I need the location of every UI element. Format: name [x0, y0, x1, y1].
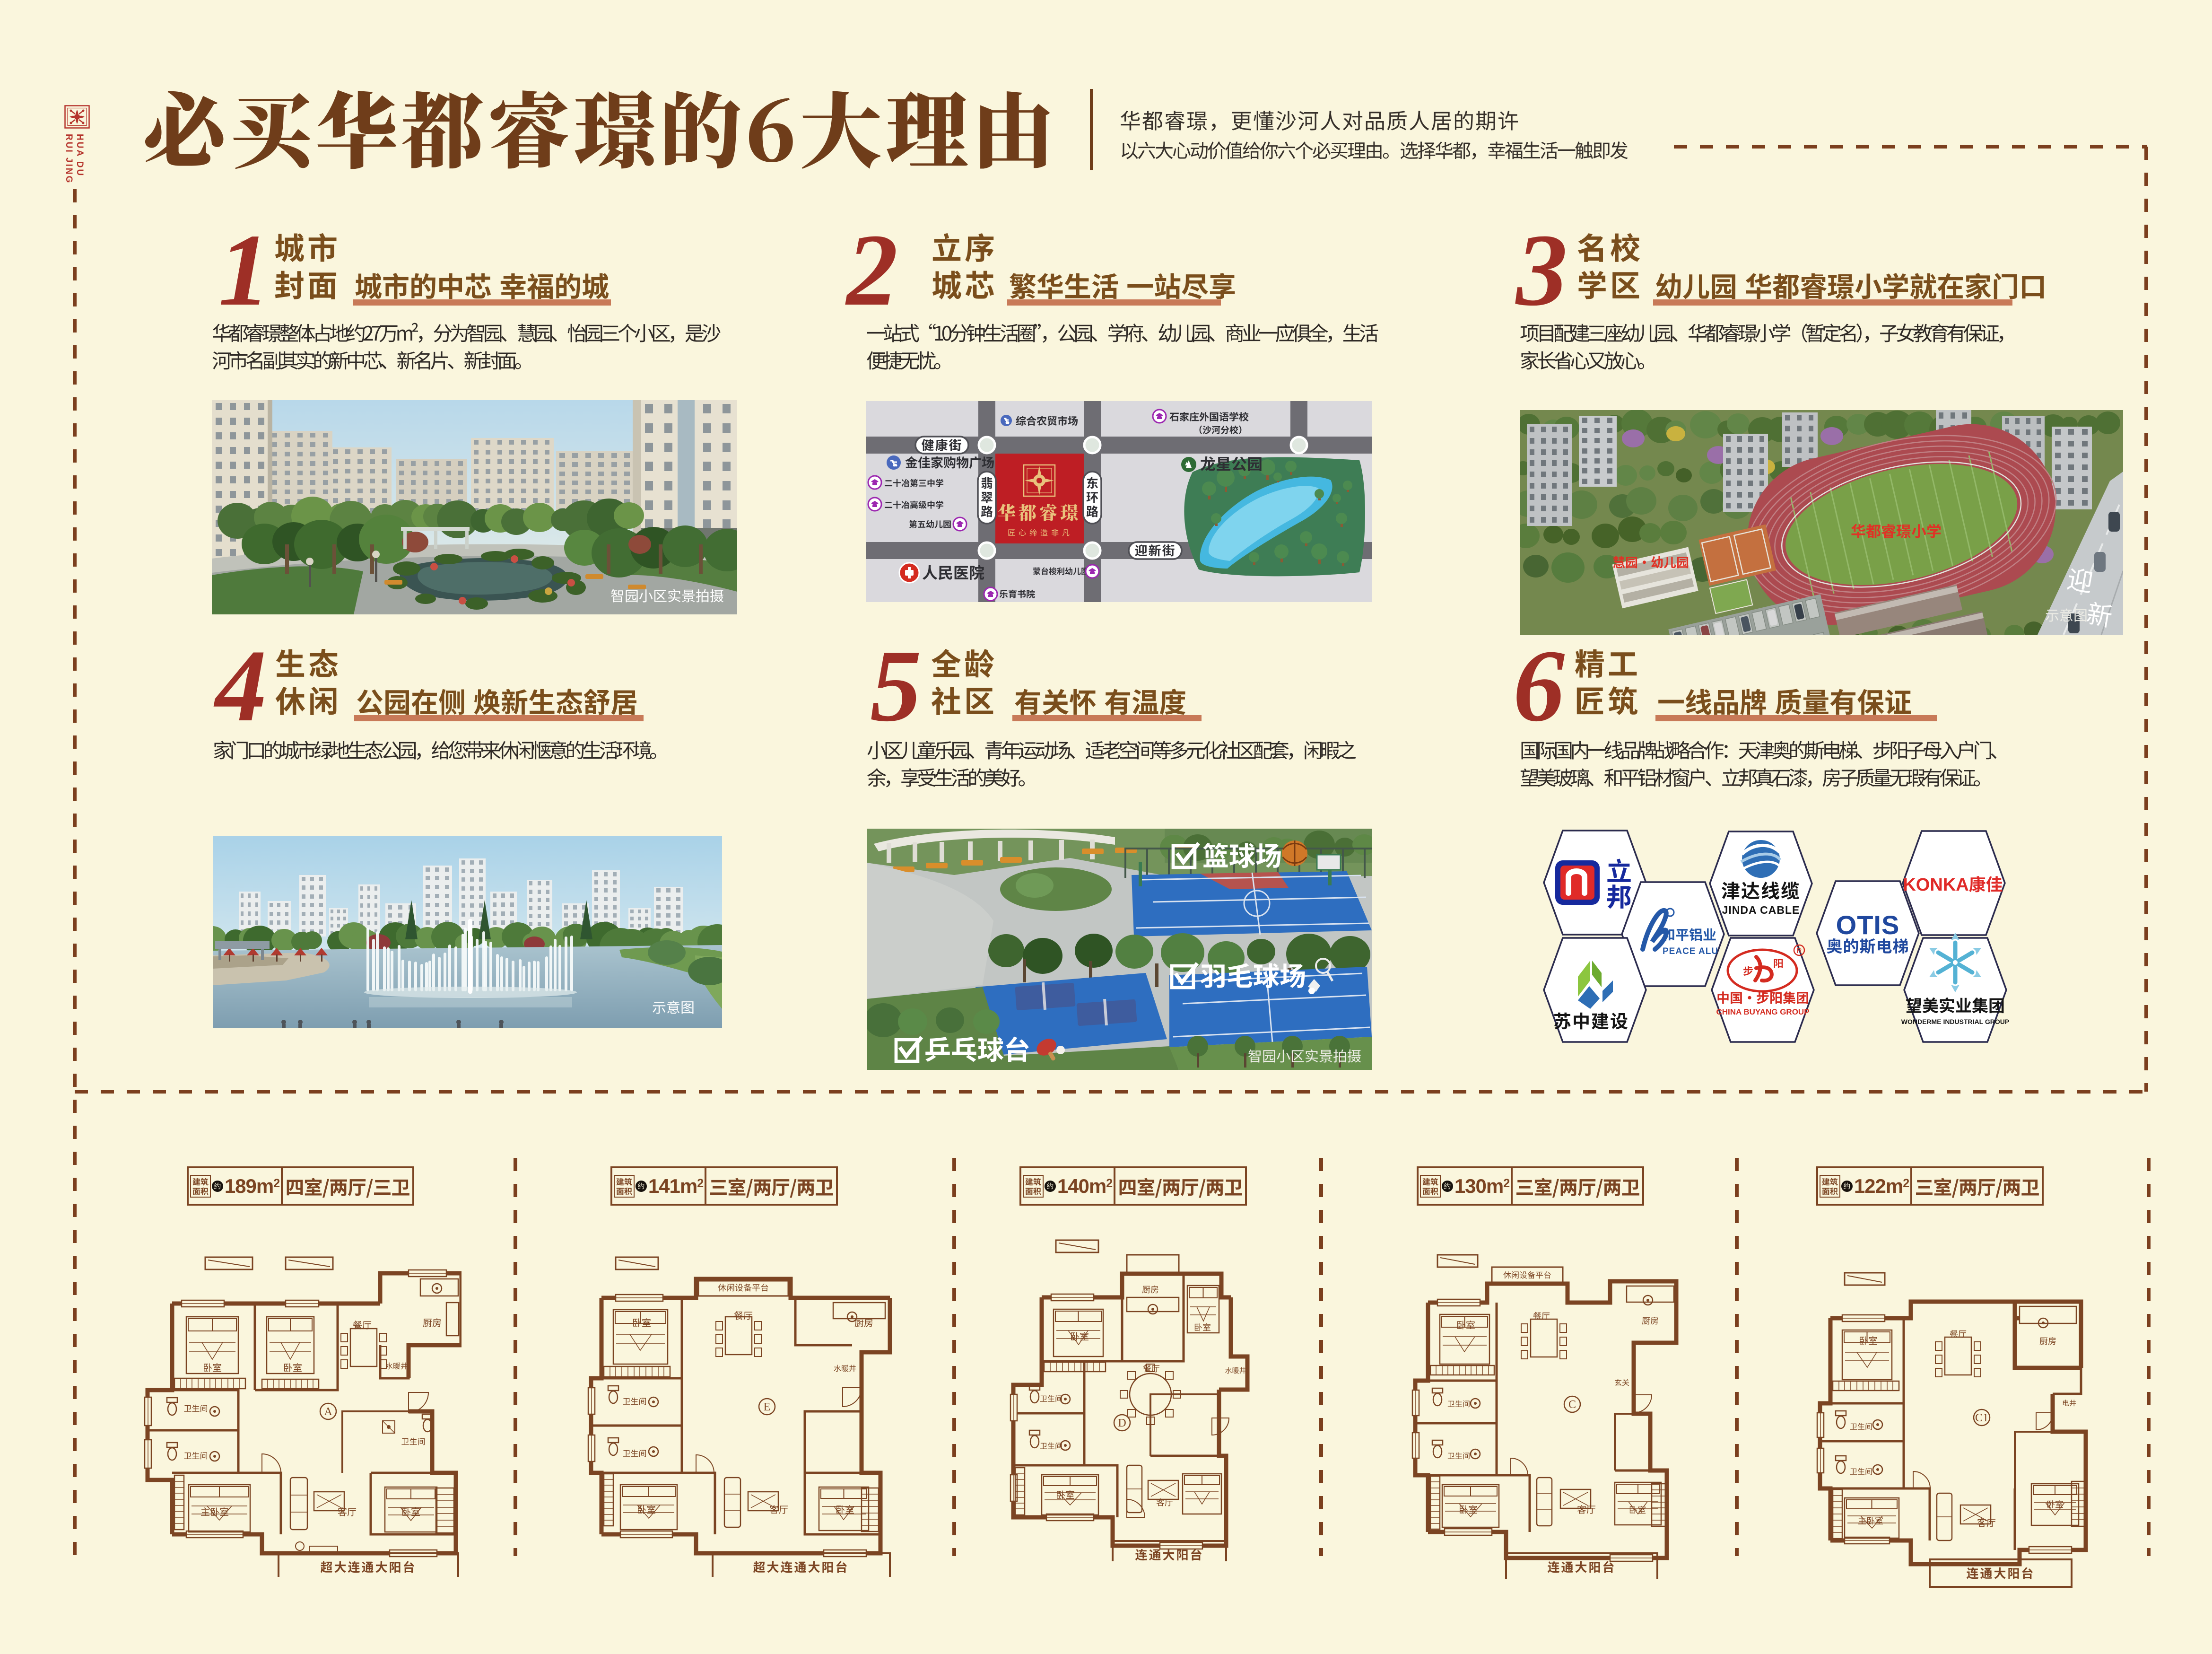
svg-text:连通大阳台: 连通大阳台 [1547, 1558, 1616, 1575]
svg-text:奥的斯电梯: 奥的斯电梯 [1827, 934, 1909, 957]
svg-text:客厅: 客厅 [338, 1505, 357, 1518]
svg-text:智园小区实景拍摄: 智园小区实景拍摄 [610, 585, 724, 605]
svg-text:电井: 电井 [2062, 1398, 2076, 1408]
svg-text:卧室: 卧室 [1070, 1329, 1089, 1343]
svg-text:连通大阳台: 连通大阳台 [1966, 1564, 2035, 1582]
svg-text:健康街: 健康街 [922, 435, 963, 454]
svg-text:餐厅: 餐厅 [1950, 1328, 1967, 1340]
svg-text:卧室: 卧室 [401, 1505, 420, 1518]
svg-text:餐厅: 餐厅 [1533, 1310, 1550, 1322]
svg-text:卫生间: 卫生间 [1447, 1398, 1470, 1409]
svg-text:D: D [1118, 1417, 1126, 1429]
svg-text:WONDERME INDUSTRIAL GROUP: WONDERME INDUSTRIAL GROUP [1901, 1018, 2009, 1025]
svg-text:华都睿璟: 华都睿璟 [998, 499, 1081, 525]
svg-text:厨房: 厨房 [2039, 1335, 2056, 1347]
svg-text:龙星公园: 龙星公园 [1200, 452, 1263, 474]
svg-text:第五幼儿园: 第五幼儿园 [909, 518, 951, 530]
svg-text:迎新街: 迎新街 [1135, 541, 1176, 559]
svg-text:金佳家购物广场: 金佳家购物广场 [905, 453, 994, 471]
svg-text:客厅: 客厅 [1156, 1496, 1173, 1508]
svg-text:卧室: 卧室 [632, 1315, 651, 1329]
svg-text:超大连通大阳台: 超大连通大阳台 [753, 1558, 849, 1575]
svg-text:华都睿璟小学: 华都睿璟小学 [1851, 520, 1942, 542]
svg-text:乒乓球台: 乒乓球台 [924, 1029, 1030, 1068]
svg-text:（沙河分校）: （沙河分校） [1193, 423, 1247, 436]
svg-text:厨房: 厨房 [423, 1315, 442, 1329]
svg-text:厨房: 厨房 [1142, 1283, 1159, 1295]
svg-text:望美实业集团: 望美实业集团 [1906, 993, 2005, 1017]
svg-text:乐育书院: 乐育书院 [999, 587, 1035, 600]
svg-text:中国·步阳集团: 中国·步阳集团 [1716, 988, 1809, 1007]
svg-text:卧室: 卧室 [836, 1502, 854, 1516]
svg-text:餐厅: 餐厅 [734, 1308, 753, 1322]
svg-text:卫生间: 卫生间 [1850, 1465, 1872, 1477]
svg-text:水暖井: 水暖井 [1225, 1365, 1246, 1375]
svg-text:卧室: 卧室 [1459, 1502, 1478, 1516]
svg-text:示意图: 示意图 [652, 996, 695, 1017]
svg-text:苏中建设: 苏中建设 [1553, 1007, 1629, 1033]
svg-text:羽毛球场: 羽毛球场 [1200, 955, 1306, 994]
svg-text:卧室: 卧室 [1056, 1488, 1075, 1501]
svg-text:篮球场: 篮球场 [1202, 835, 1282, 874]
svg-text:二十冶高级中学: 二十冶高级中学 [884, 499, 944, 511]
svg-text:卫生间: 卫生间 [1040, 1392, 1062, 1404]
svg-text:C: C [1568, 1399, 1576, 1411]
svg-text:KONKA康佳: KONKA康佳 [1903, 871, 2003, 896]
svg-text:卧室: 卧室 [283, 1360, 302, 1374]
svg-text:卧室: 卧室 [1456, 1318, 1475, 1331]
svg-text:阳: 阳 [1773, 955, 1784, 971]
svg-text:卧室: 卧室 [637, 1502, 656, 1516]
svg-text:津达线缆: 津达线缆 [1721, 876, 1801, 903]
svg-text:翡翠路: 翡翠路 [981, 474, 993, 520]
svg-text:卫生间: 卫生间 [401, 1435, 426, 1447]
svg-text:水暖井: 水暖井 [385, 1360, 408, 1371]
svg-text:主卧室: 主卧室 [200, 1505, 229, 1518]
svg-text:卧室: 卧室 [1859, 1333, 1878, 1347]
svg-text:JINDA CABLE: JINDA CABLE [1722, 904, 1800, 916]
svg-text:卫生间: 卫生间 [623, 1447, 647, 1459]
svg-text:卫生间: 卫生间 [184, 1449, 208, 1461]
svg-text:示意图: 示意图 [2045, 604, 2088, 625]
svg-text:客厅: 客厅 [769, 1502, 788, 1516]
svg-text:步: 步 [1743, 963, 1753, 978]
svg-text:邦: 邦 [1606, 876, 1632, 914]
svg-text:卫生间: 卫生间 [623, 1395, 647, 1407]
svg-text:厨房: 厨房 [1642, 1314, 1659, 1327]
svg-text:慧园·幼儿园: 慧园·幼儿园 [1612, 552, 1689, 571]
svg-text:休闲设备平台: 休闲设备平台 [1503, 1269, 1551, 1280]
svg-text:E: E [764, 1401, 771, 1413]
svg-text:休闲设备平台: 休闲设备平台 [718, 1281, 769, 1294]
svg-text:玄关: 玄关 [1614, 1376, 1629, 1388]
svg-text:客厅: 客厅 [1577, 1502, 1596, 1516]
svg-text:超大连通大阳台: 超大连通大阳台 [320, 1558, 416, 1575]
svg-text:综合农贸市场: 综合农贸市场 [1016, 413, 1078, 428]
svg-text:C1: C1 [1975, 1412, 1988, 1424]
svg-text:卫生间: 卫生间 [1850, 1420, 1872, 1432]
svg-text:卫生间: 卫生间 [1040, 1440, 1062, 1451]
svg-text:主卧室: 主卧室 [1858, 1514, 1883, 1527]
svg-text:水暖井: 水暖井 [834, 1362, 856, 1374]
svg-text:客厅: 客厅 [1977, 1515, 1996, 1529]
svg-text:蒙台梭利幼儿园: 蒙台梭利幼儿园 [1033, 565, 1089, 577]
svg-text:人民医院: 人民医院 [922, 560, 984, 583]
svg-text:PEACE ALU: PEACE ALU [1663, 946, 1718, 956]
svg-text:匠心缔造非凡: 匠心缔造非凡 [1008, 526, 1073, 538]
svg-text:连通大阳台: 连通大阳台 [1135, 1546, 1203, 1561]
svg-text:和平铝业: 和平铝业 [1662, 924, 1716, 944]
svg-text:卧室: 卧室 [1194, 1321, 1211, 1333]
svg-text:卫生间: 卫生间 [1447, 1450, 1470, 1461]
svg-text:智园小区实景拍摄: 智园小区实景拍摄 [1248, 1045, 1361, 1066]
svg-text:CHINA BUYANG GROUP: CHINA BUYANG GROUP [1716, 1007, 1809, 1016]
svg-text:餐厅: 餐厅 [353, 1318, 372, 1331]
svg-text:R: R [1797, 947, 1802, 955]
svg-text:卧室: 卧室 [1629, 1504, 1646, 1516]
svg-text:二十冶第三中学: 二十冶第三中学 [884, 477, 944, 489]
svg-text:厨房: 厨房 [854, 1315, 873, 1329]
svg-text:A: A [324, 1406, 332, 1418]
svg-text:卧室: 卧室 [203, 1360, 222, 1374]
svg-text:石家庄外国语学校: 石家庄外国语学校 [1169, 410, 1249, 424]
svg-text:餐厅: 餐厅 [1143, 1362, 1160, 1374]
svg-text:卫生间: 卫生间 [184, 1402, 208, 1414]
svg-text:东环路: 东环路 [1086, 474, 1098, 520]
svg-text:卧室: 卧室 [2047, 1498, 2064, 1510]
